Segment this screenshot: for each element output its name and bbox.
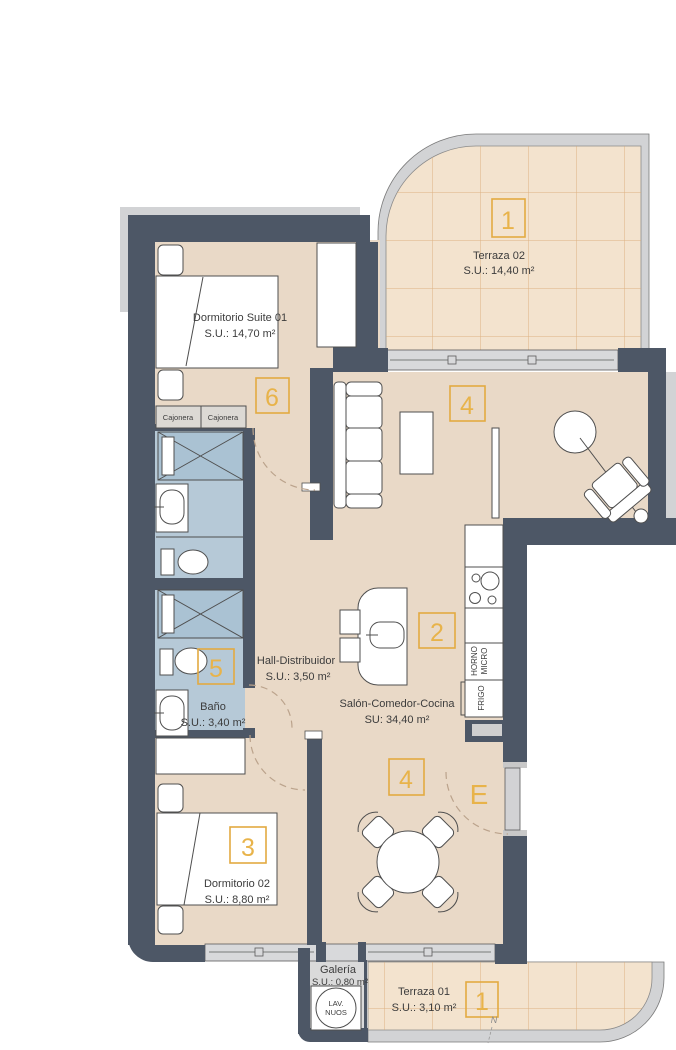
- entrance-door-leaf: [505, 768, 520, 830]
- tag-terraza01: 1: [475, 988, 489, 1016]
- floor-lamp: [554, 411, 596, 453]
- stool: [340, 610, 360, 634]
- frigo-label: FRIGO: [477, 685, 486, 710]
- galeria-area: S.U.: 0,80 m²: [312, 977, 368, 988]
- dorm02-area: S.U.: 8,80 m²: [205, 894, 270, 906]
- tag-bano: 5: [209, 655, 223, 683]
- cajonera-left-label: Cajonera: [163, 413, 194, 422]
- terraza02-area: [378, 134, 649, 352]
- terraza02-area: S.U.: 14,40 m²: [464, 265, 535, 277]
- micro-label: MICRO: [480, 648, 489, 675]
- hall-name: Hall-Distribuidor: [257, 655, 336, 667]
- galeria-name: Galería: [320, 964, 357, 976]
- hall-area: S.U.: 3,50 m²: [266, 671, 331, 683]
- dorm02-name: Dormitorio 02: [204, 878, 270, 890]
- tag-living: 4: [460, 392, 474, 420]
- dorm02-wardrobe: [156, 738, 245, 774]
- terraza01-name: Terraza 01: [398, 986, 450, 998]
- salon-area: SU: 34,40 m²: [365, 714, 430, 726]
- sofa: [334, 382, 382, 508]
- north-label: N: [491, 1015, 498, 1025]
- kitchen-counter: HORNO MICRO FRIGO: [461, 525, 503, 717]
- lav-label-line1: LAV.: [328, 999, 343, 1008]
- coffee-table: [400, 412, 433, 474]
- tag-dining: 4: [399, 766, 413, 794]
- horno-label: HORNO: [470, 646, 479, 676]
- entrance-tag: E: [470, 779, 489, 810]
- tv-sideboard: [492, 428, 499, 518]
- bano-area: S.U.: 3,40 m²: [181, 717, 246, 729]
- bano-name: Baño: [200, 701, 226, 713]
- cajonera-right-label: Cajonera: [208, 413, 239, 422]
- suite-name: Dormitorio Suite 01: [193, 312, 287, 324]
- dining-table: [377, 831, 439, 893]
- tag-dorm02: 3: [241, 834, 255, 862]
- tag-suite: 6: [265, 384, 279, 412]
- stool: [340, 638, 360, 662]
- suite-wardrobe: [317, 243, 356, 347]
- floor-plan-page: Cajonera Cajonera: [0, 0, 676, 1050]
- salon-name: Salón-Comedor-Cocina: [340, 698, 456, 710]
- tag-terraza02: 1: [501, 207, 515, 235]
- suite-area: S.U.: 14,70 m²: [205, 328, 276, 340]
- terraza02-name: Terraza 02: [473, 250, 525, 262]
- cajonera-units: Cajonera Cajonera: [156, 406, 246, 428]
- terraza01-area: S.U.: 3,10 m²: [392, 1002, 457, 1014]
- washing-machine: LAV. NUOS: [311, 986, 361, 1030]
- lav-label-line2: NUOS: [325, 1008, 347, 1017]
- floor-plan-drawing: Cajonera Cajonera: [0, 0, 676, 1050]
- tag-kitchen: 2: [430, 619, 444, 647]
